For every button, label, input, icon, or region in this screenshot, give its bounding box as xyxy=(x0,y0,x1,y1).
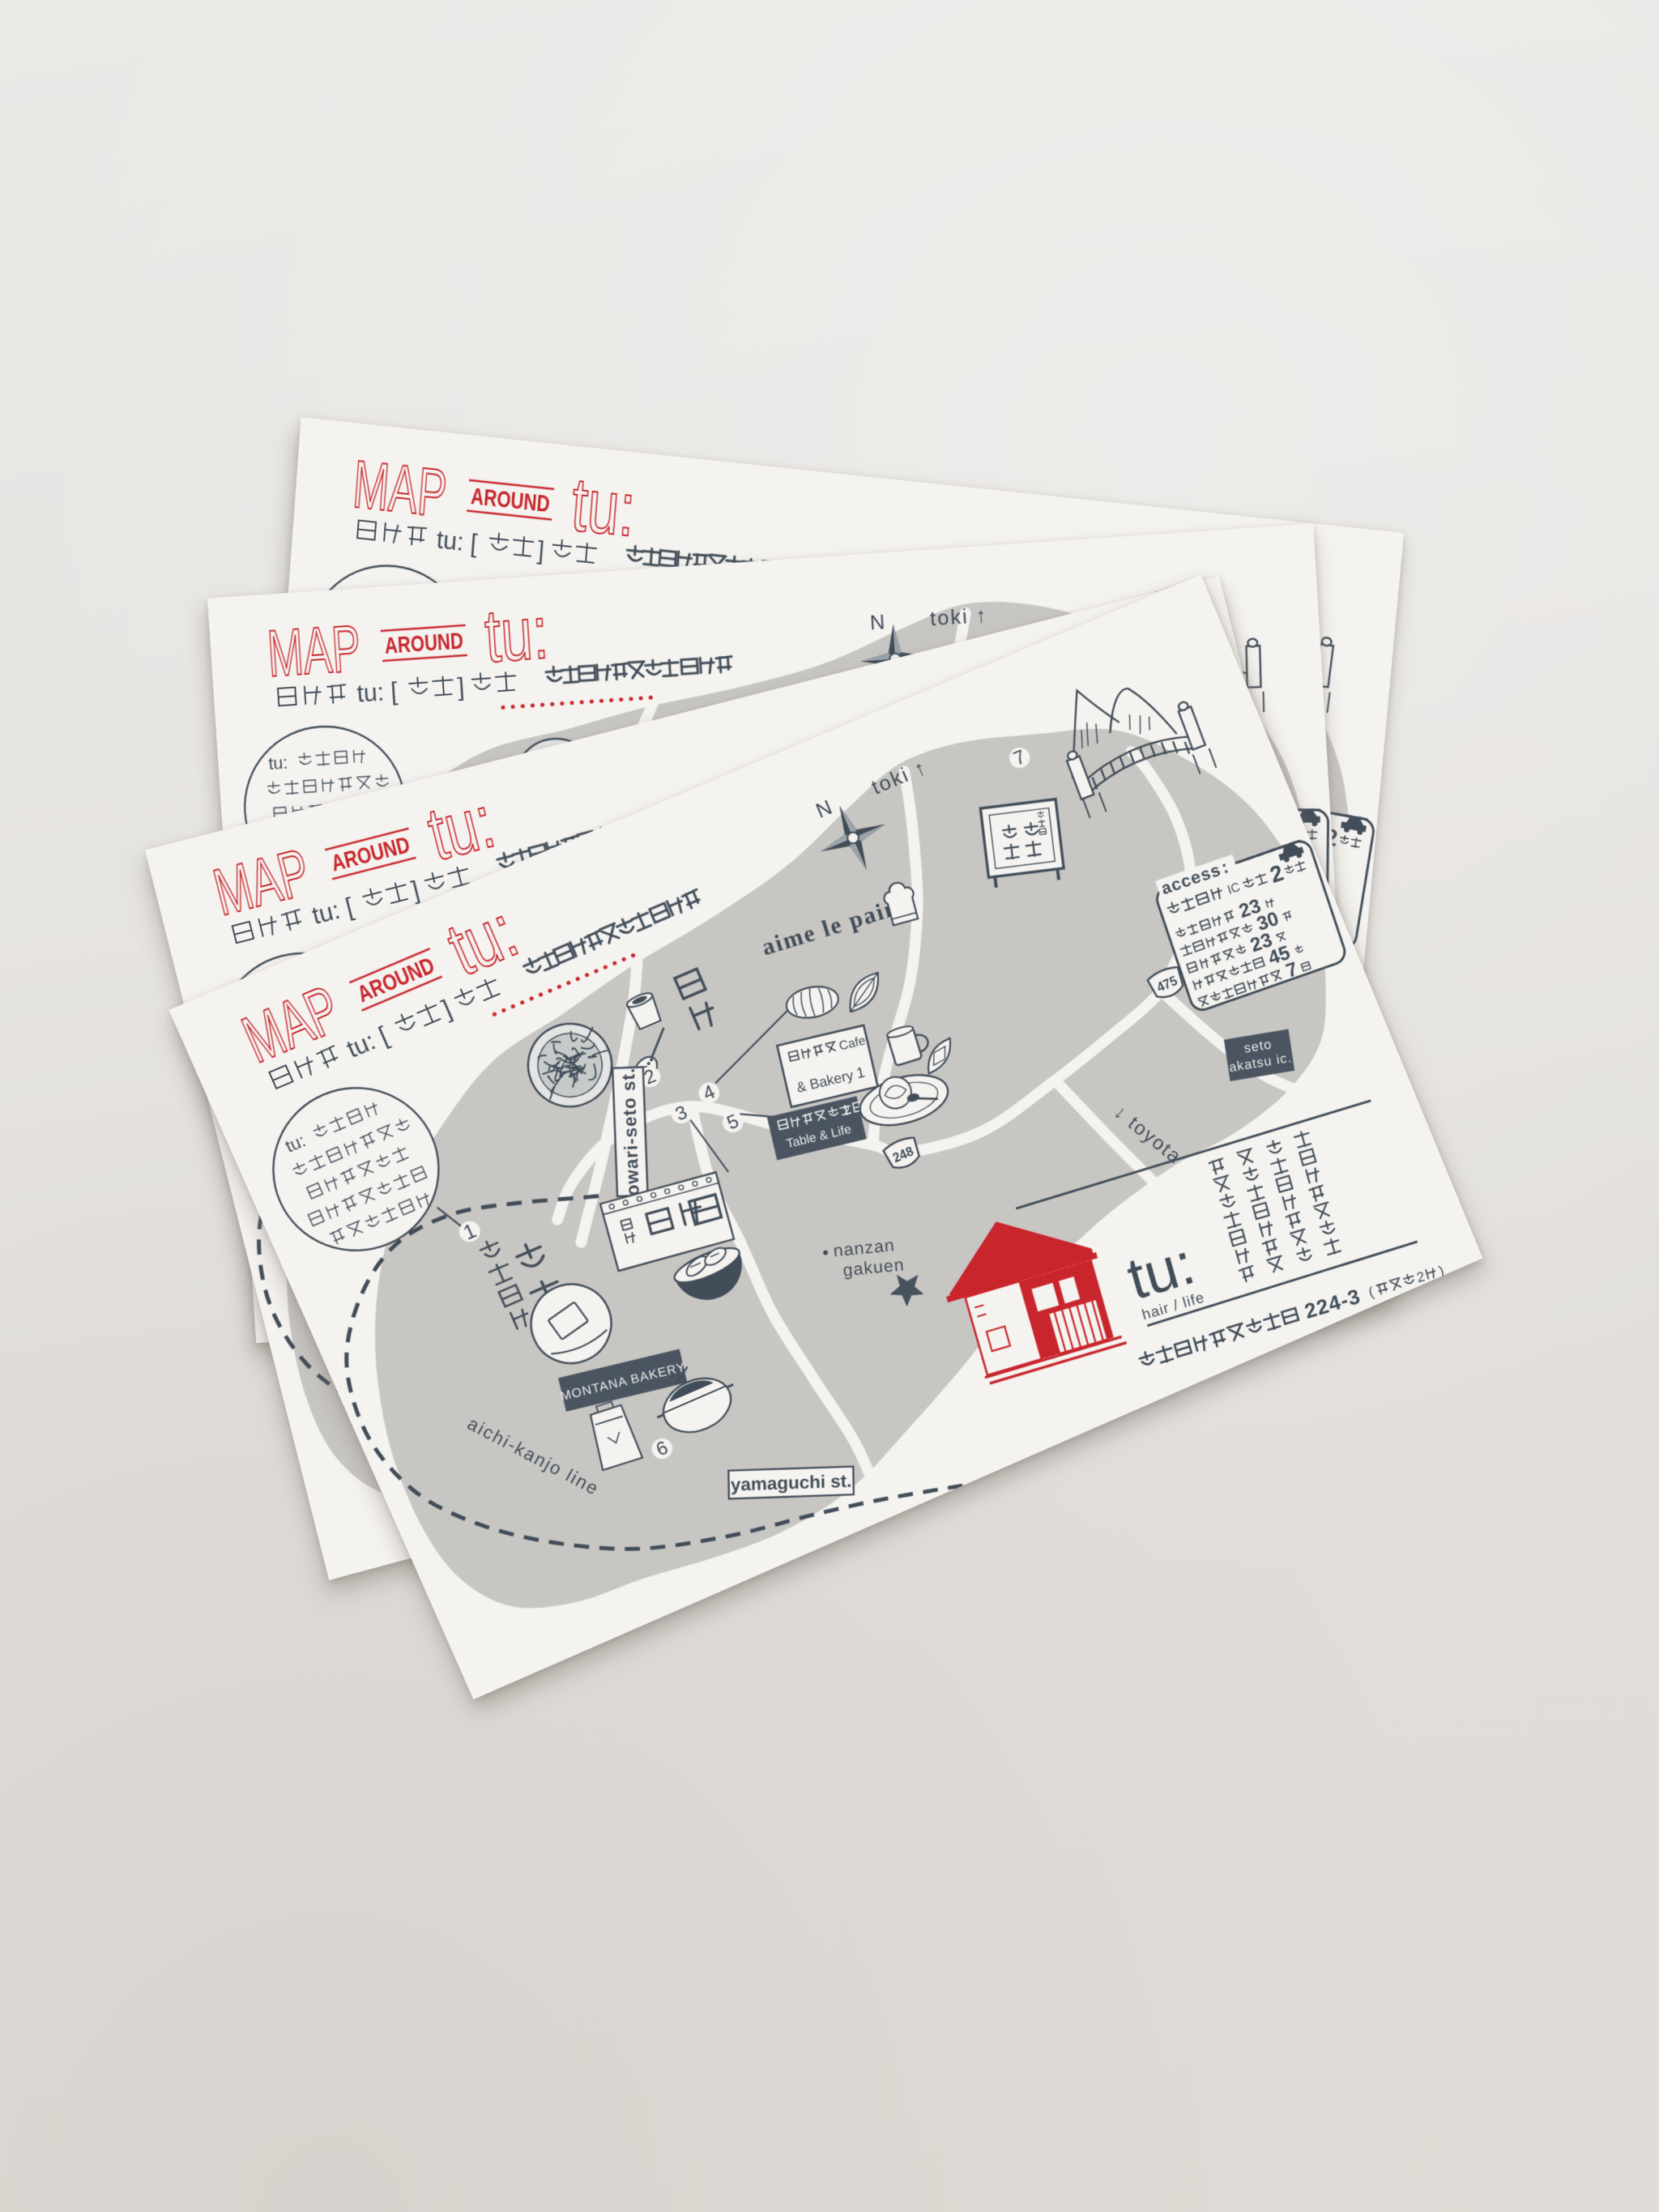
svg-text:2: 2 xyxy=(1415,1268,1427,1285)
svg-text:]: ] xyxy=(457,674,465,701)
svg-text:tu: [: tu: [ xyxy=(343,1021,393,1063)
svg-text:MAP: MAP xyxy=(207,834,317,930)
svg-text:tu:: tu: xyxy=(420,779,502,876)
svg-text:tu: [: tu: [ xyxy=(356,678,399,707)
svg-text:]: ] xyxy=(408,876,422,905)
svg-text:N: N xyxy=(869,611,885,634)
svg-text:tu:: tu: xyxy=(268,753,288,774)
svg-text:]: ] xyxy=(536,536,545,565)
svg-text:tu:: tu: xyxy=(569,461,638,552)
svg-text:toki ↑: toki ↑ xyxy=(929,604,988,631)
svg-text:tu:: tu: xyxy=(436,889,529,991)
svg-text:MAP: MAP xyxy=(266,611,363,691)
svg-text:(: ( xyxy=(1367,1284,1375,1300)
svg-text:MAP: MAP xyxy=(351,446,450,531)
svg-text:N: N xyxy=(812,795,835,823)
svg-text:tu: [: tu: [ xyxy=(436,526,479,558)
svg-text:MAP: MAP xyxy=(232,970,350,1076)
svg-text:yamaguchi st.: yamaguchi st. xyxy=(731,1471,852,1495)
svg-text:tu: [: tu: [ xyxy=(309,893,356,930)
svg-text:AROUND: AROUND xyxy=(384,628,464,659)
svg-text:tu:: tu: xyxy=(482,590,550,678)
svg-text:AROUND: AROUND xyxy=(353,953,438,1008)
